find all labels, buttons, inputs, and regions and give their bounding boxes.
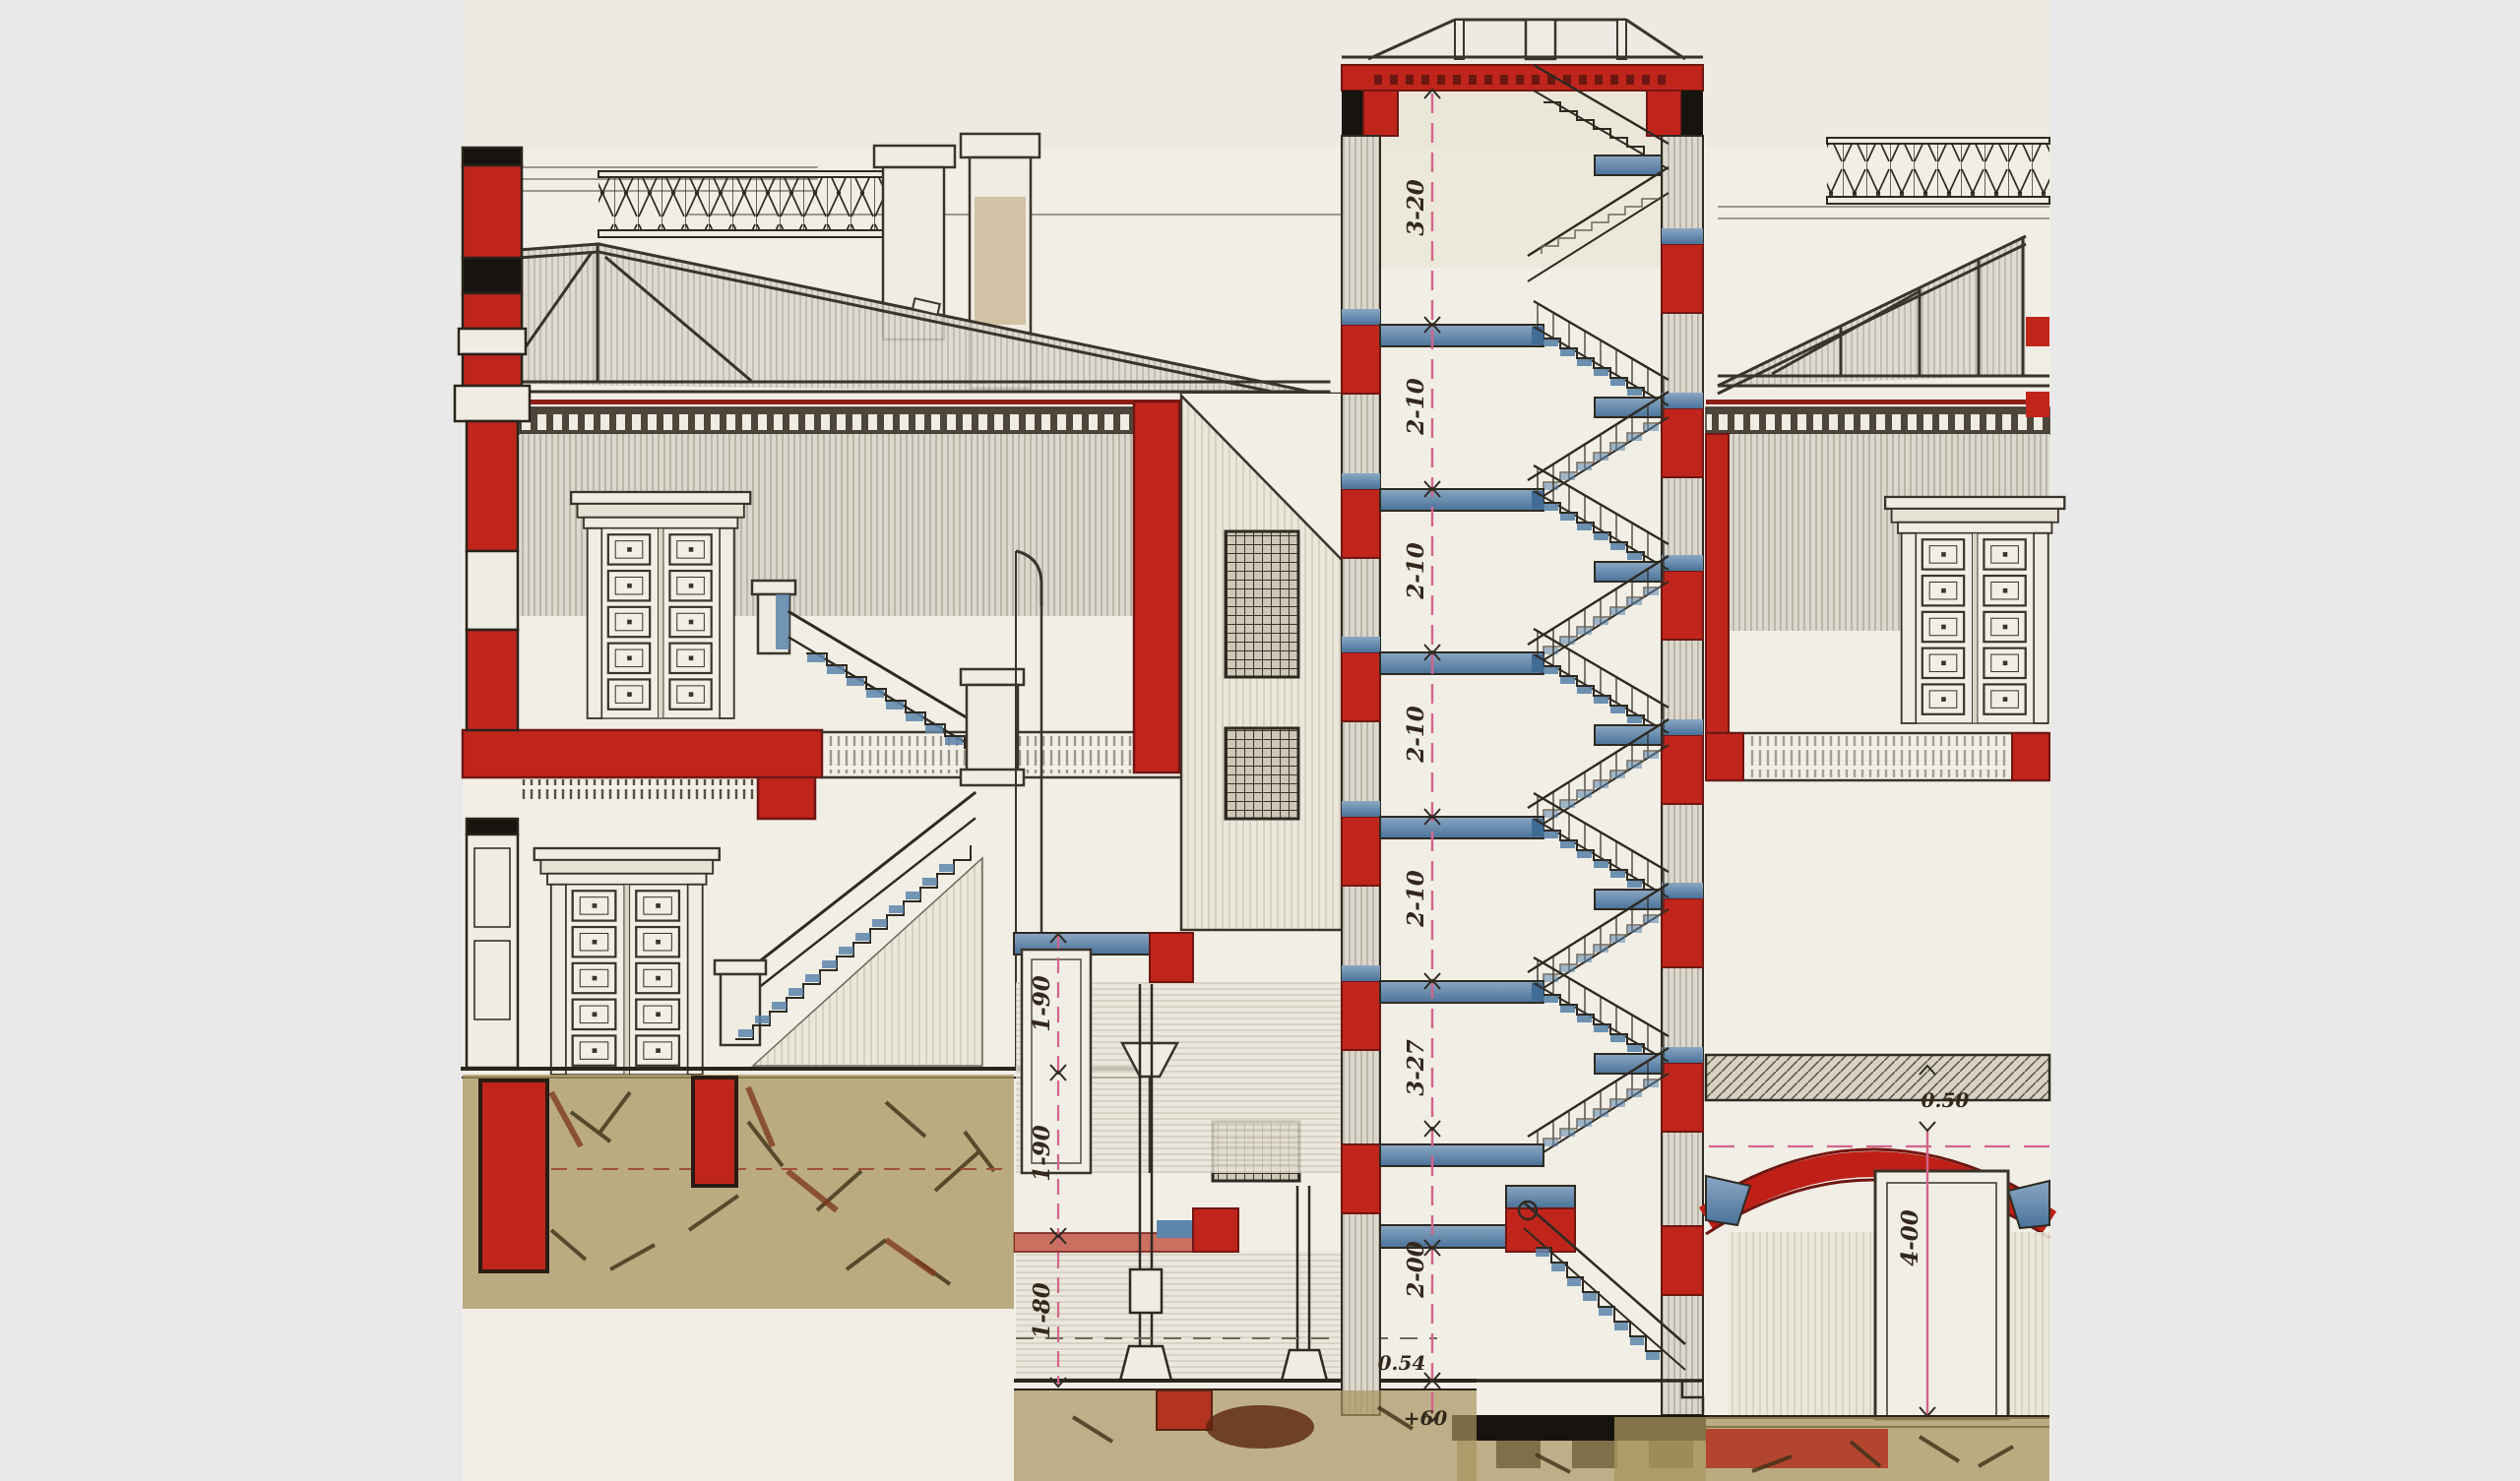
vent-grille <box>1226 531 1298 677</box>
mid-red-wall <box>1134 401 1179 772</box>
dim-label-stair-8: +60 <box>1404 1406 1448 1430</box>
left-outer-wall <box>455 148 530 1068</box>
foundation-pier <box>480 1080 547 1271</box>
door-lower-left <box>535 848 720 1075</box>
dim-label-stair-2: 2-10 <box>1403 542 1429 600</box>
dim-label-room-0: 1-90 <box>1029 975 1055 1032</box>
dim-label-vault-height: 4-00 <box>1897 1209 1923 1266</box>
scanned-drawing-page: 3-20 2-10 2-10 2-10 2-10 3-27 2-00 0.54 … <box>0 0 2520 1481</box>
dim-label-vault-crown: 0.50 <box>1921 1088 1970 1112</box>
dim-label-room-2: 1-80 <box>1029 1282 1055 1339</box>
dim-label-stair-7: 0.54 <box>1378 1351 1426 1375</box>
dentil-cornice-right <box>1706 407 2049 434</box>
foundation-pier <box>693 1078 736 1186</box>
dim-label-stair-0: 3-20 <box>1403 179 1429 236</box>
cellar-door <box>1875 1171 2008 1419</box>
paper-sky-band <box>463 0 2050 148</box>
door-upper-right <box>1885 497 2064 723</box>
mezzanine-landing <box>1380 1144 1543 1166</box>
dim-label-stair-4: 2-10 <box>1403 870 1429 928</box>
dim-label-stair-3: 2-10 <box>1403 706 1429 764</box>
tower-frieze <box>1373 67 1671 89</box>
cornice-red-line-right <box>1706 400 2049 404</box>
vent-grille <box>1226 728 1298 819</box>
dim-label-stair-6: 2-00 <box>1403 1241 1429 1299</box>
right-wing-red-wall <box>1706 434 1729 733</box>
dim-label-room-1: 1-90 <box>1029 1125 1055 1182</box>
dim-label-stair-5: 3-27 <box>1403 1039 1429 1096</box>
door-upper-left <box>571 492 750 718</box>
iron-cresting-right <box>1827 138 2049 204</box>
dim-label-stair-1: 2-10 <box>1403 378 1429 436</box>
iron-cresting-left <box>598 171 915 237</box>
right-floor-slab <box>1706 733 2049 780</box>
chimney-stain <box>975 197 1026 325</box>
